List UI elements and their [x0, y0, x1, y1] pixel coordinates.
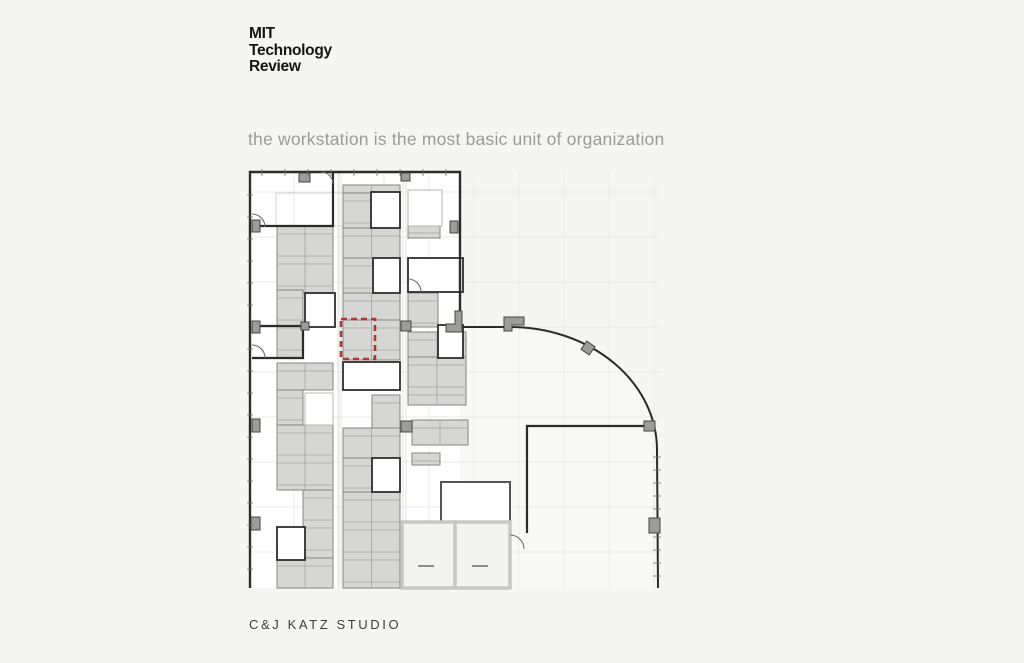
workstation-cluster — [303, 490, 333, 560]
meeting-room — [408, 258, 463, 292]
column — [401, 173, 410, 181]
conference-room — [441, 482, 510, 523]
meeting-room — [373, 258, 400, 293]
meeting-room — [371, 192, 400, 228]
workstation-cluster — [408, 293, 438, 327]
column — [301, 322, 309, 330]
workstation-cluster — [343, 458, 372, 492]
floor-plan-drawing — [0, 0, 1024, 663]
meeting-room — [372, 458, 400, 492]
meeting-room — [277, 527, 305, 560]
workstation-cluster — [408, 225, 440, 238]
column — [401, 421, 412, 432]
column — [252, 321, 260, 333]
core-room — [402, 522, 455, 588]
column — [252, 220, 260, 232]
column — [251, 517, 260, 530]
workstation-cluster — [412, 453, 440, 465]
column — [252, 419, 260, 432]
slide: MIT Technology Review the workstation is… — [0, 0, 1024, 663]
studio-credit: C&J KATZ STUDIO — [249, 617, 401, 632]
workstation-cluster — [372, 395, 400, 428]
column — [644, 421, 655, 431]
workstation-cluster — [277, 290, 303, 358]
meeting-room — [343, 362, 400, 390]
core-room — [455, 522, 510, 588]
column — [649, 518, 660, 533]
office-room — [408, 190, 442, 226]
column — [450, 221, 458, 233]
office-room — [305, 393, 333, 425]
column — [401, 321, 411, 331]
